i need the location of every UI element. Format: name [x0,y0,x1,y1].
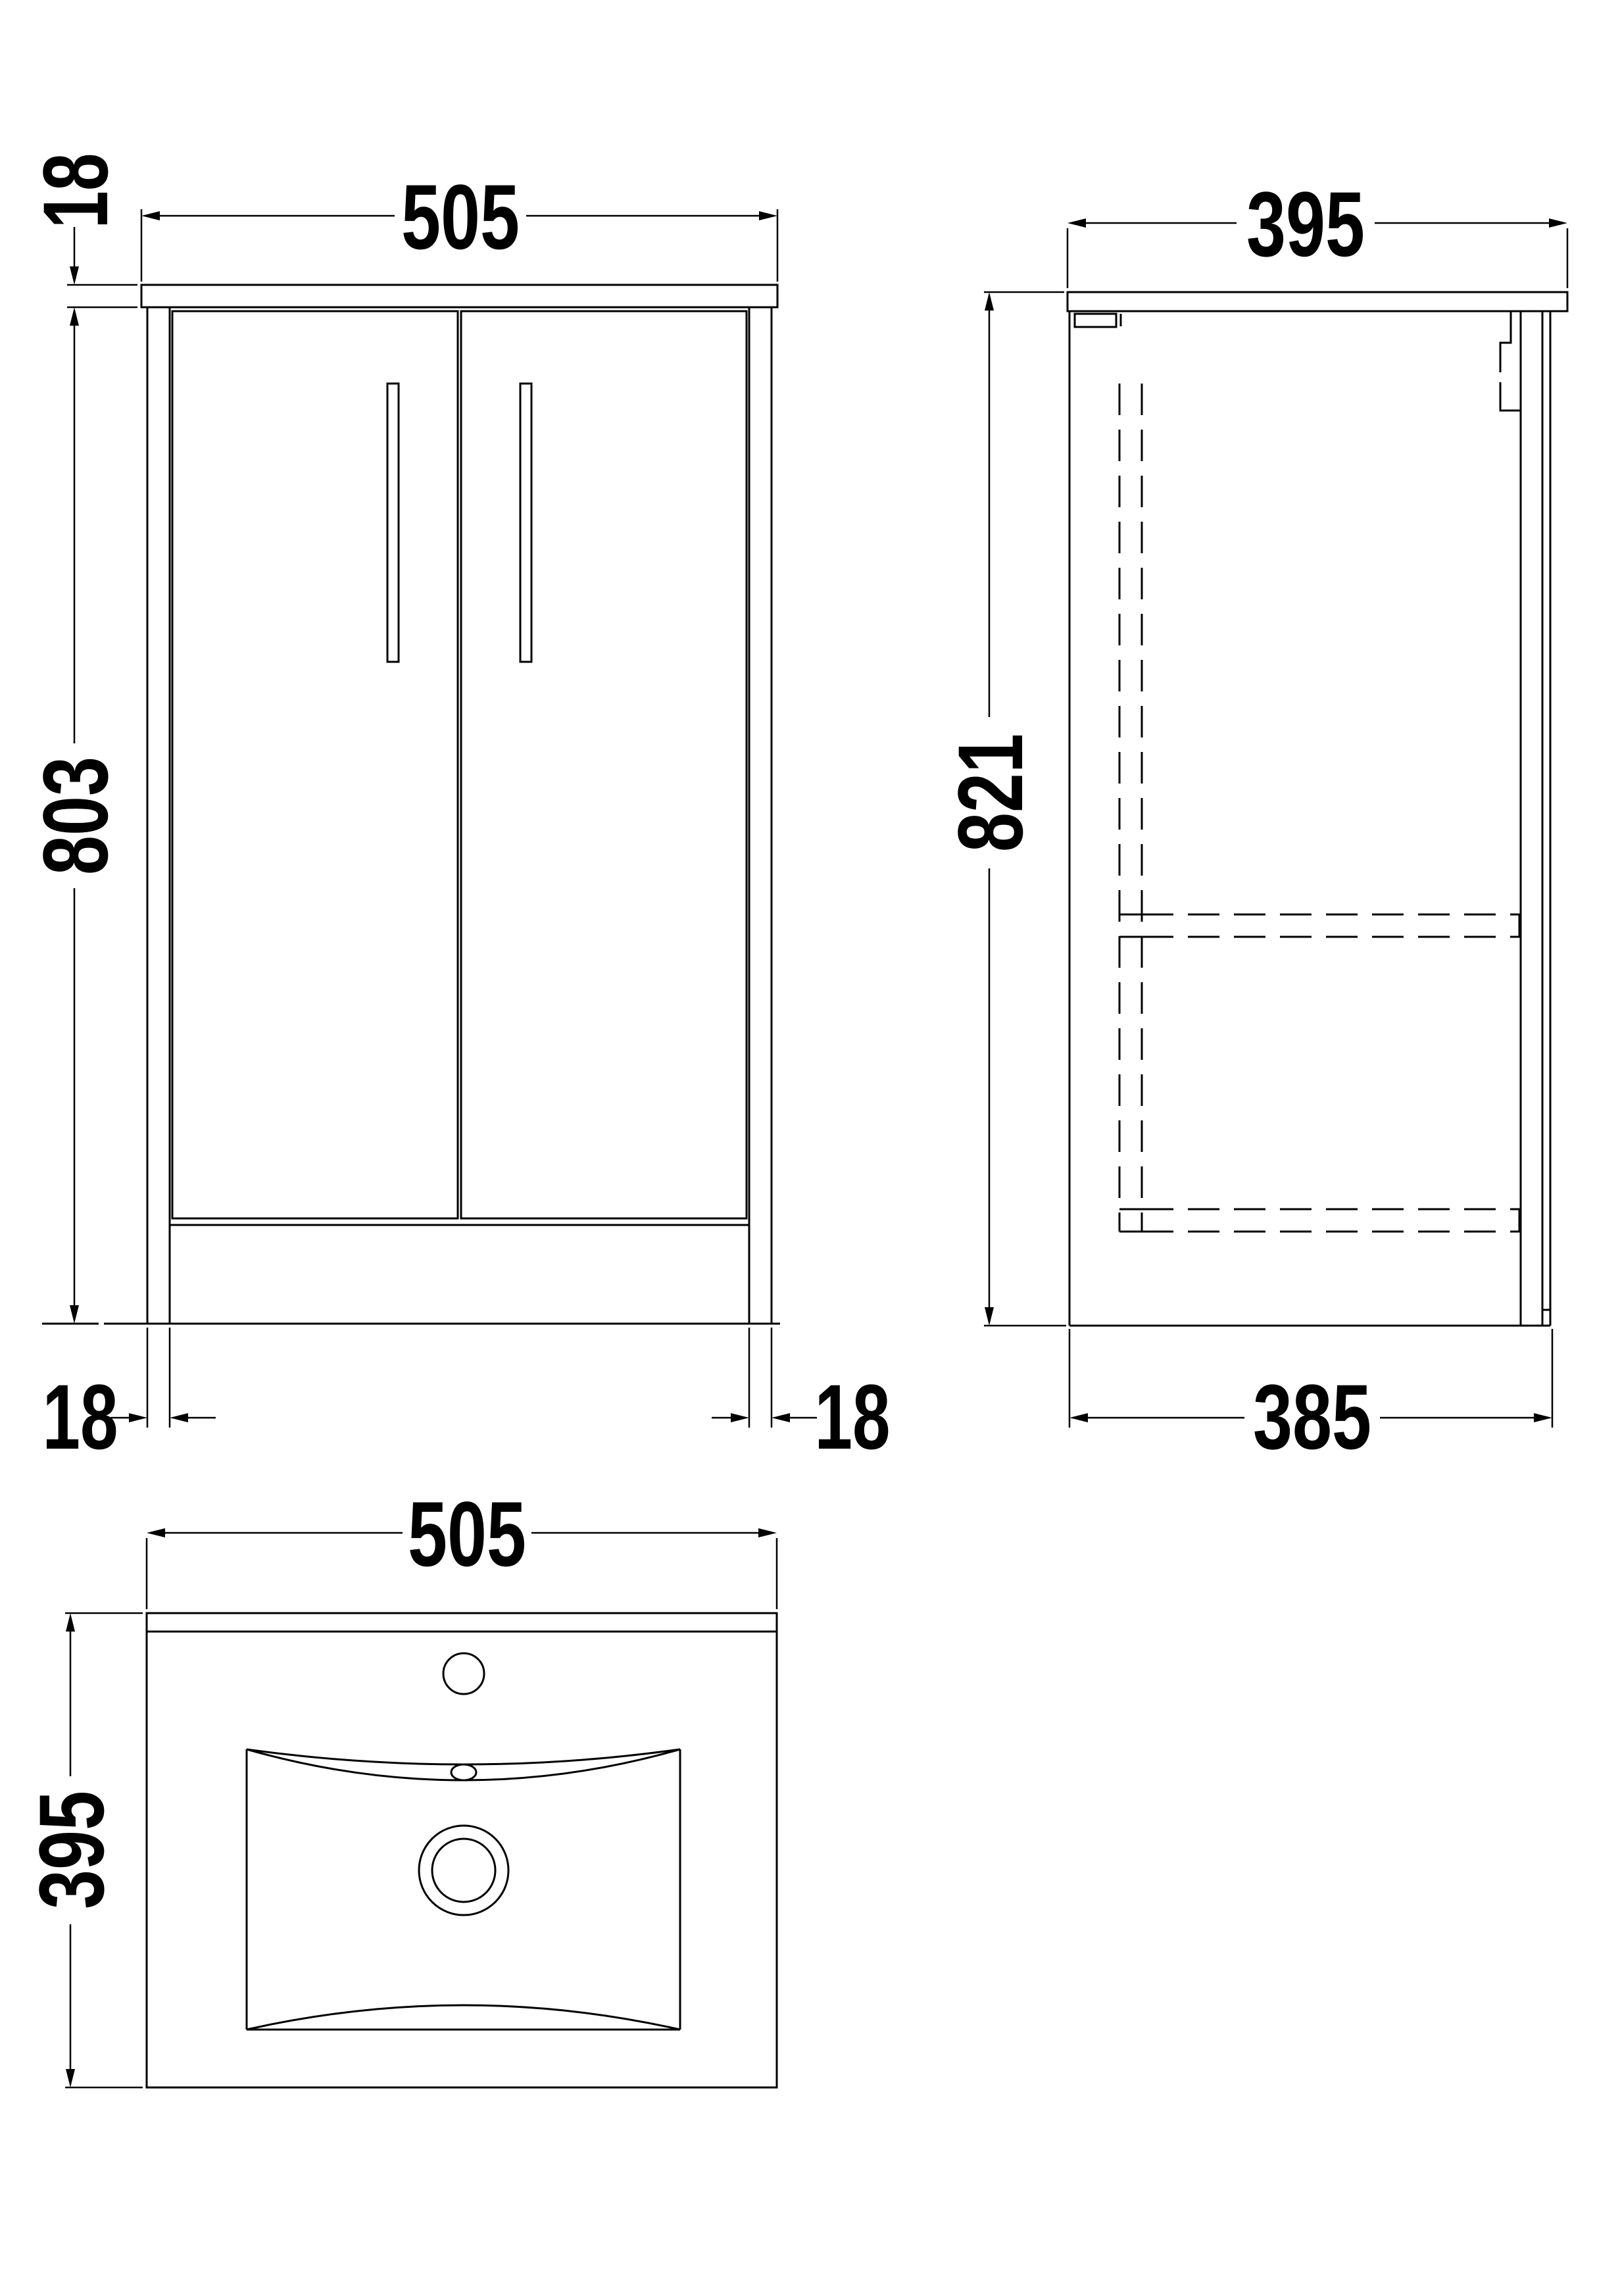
front-right-side-panel [749,307,772,1324]
hidden-bottom-shelf [1119,1209,1521,1232]
front-right-handle-slot [520,384,531,662]
front-right-panel-label: 18 [815,1365,891,1468]
technical-drawing: 505 18 803 18 18 [0,0,1620,2296]
dim-arrow-icon [66,2069,75,2087]
side-height-label: 821 [939,734,1042,852]
front-left-panel-label: 18 [43,1365,118,1468]
front-countertop [141,285,777,307]
plan-depth-dimension: 395 [20,1613,143,2087]
dim-arrow-icon [1534,1413,1552,1422]
dim-arrow-icon [1549,218,1567,228]
dim-arrow-icon [70,266,79,285]
plan-depth-label: 395 [20,1791,123,1909]
dim-arrow-icon [1068,218,1086,228]
basin-top-outer-curve [247,1749,680,1764]
wall-bracket-icon [1075,314,1116,327]
dim-arrow-icon [141,211,160,220]
front-left-side-panel [147,307,170,1324]
dim-arrow-icon [759,211,777,220]
dim-arrow-icon [170,1413,188,1422]
overflow-hole [451,1764,476,1780]
dim-arrow-icon [772,1413,790,1422]
hinge-plate-icon [1500,311,1521,411]
dim-arrow-icon [985,292,994,311]
front-left-panel-dimension: 18 [43,1328,216,1468]
side-base-depth-dimension: 385 [1069,1329,1552,1468]
side-depth-dimension: 395 [1068,172,1567,288]
front-right-panel-dimension: 18 [712,1328,891,1468]
dim-arrow-icon [1069,1413,1088,1422]
front-right-door [461,311,747,1218]
side-height-dimension: 821 [939,292,1066,1326]
side-countertop [1068,292,1567,311]
dim-arrow-icon [147,1528,165,1537]
front-counter-thickness-label: 18 [24,153,127,229]
dim-arrow-icon [758,1528,777,1537]
basin-outline [247,1749,680,2030]
basin-bottom-curve [247,2005,680,2030]
side-depth-label: 395 [1246,172,1365,276]
plan-view [147,1613,777,2087]
plan-countertop [147,1613,777,2087]
plan-width-dimension: 505 [147,1482,777,1609]
dim-arrow-icon [70,1305,79,1324]
plan-width-label: 505 [408,1482,526,1585]
front-width-label: 505 [401,165,520,268]
drain-inner-circle [432,1839,495,1902]
dim-arrow-icon [985,1307,994,1326]
side-base-depth-label: 385 [1253,1365,1371,1468]
dim-arrow-icon [731,1413,749,1422]
dim-arrow-icon [66,1613,75,1632]
hidden-middle-shelf [1119,914,1521,937]
side-view [1068,292,1567,1326]
front-width-dimension: 505 [141,165,777,282]
front-left-door [172,311,458,1218]
dim-arrow-icon [70,307,79,326]
front-left-handle-slot [387,384,399,662]
tap-hole [443,1653,484,1694]
front-body-height-label: 803 [24,757,127,875]
front-counter-thickness-dimension: 18 [24,153,137,326]
dim-arrow-icon [129,1413,147,1422]
drawing-page: 505 18 803 18 18 [0,0,1620,2296]
front-body-height-dimension: 803 [24,326,127,1324]
front-view [42,285,780,1324]
